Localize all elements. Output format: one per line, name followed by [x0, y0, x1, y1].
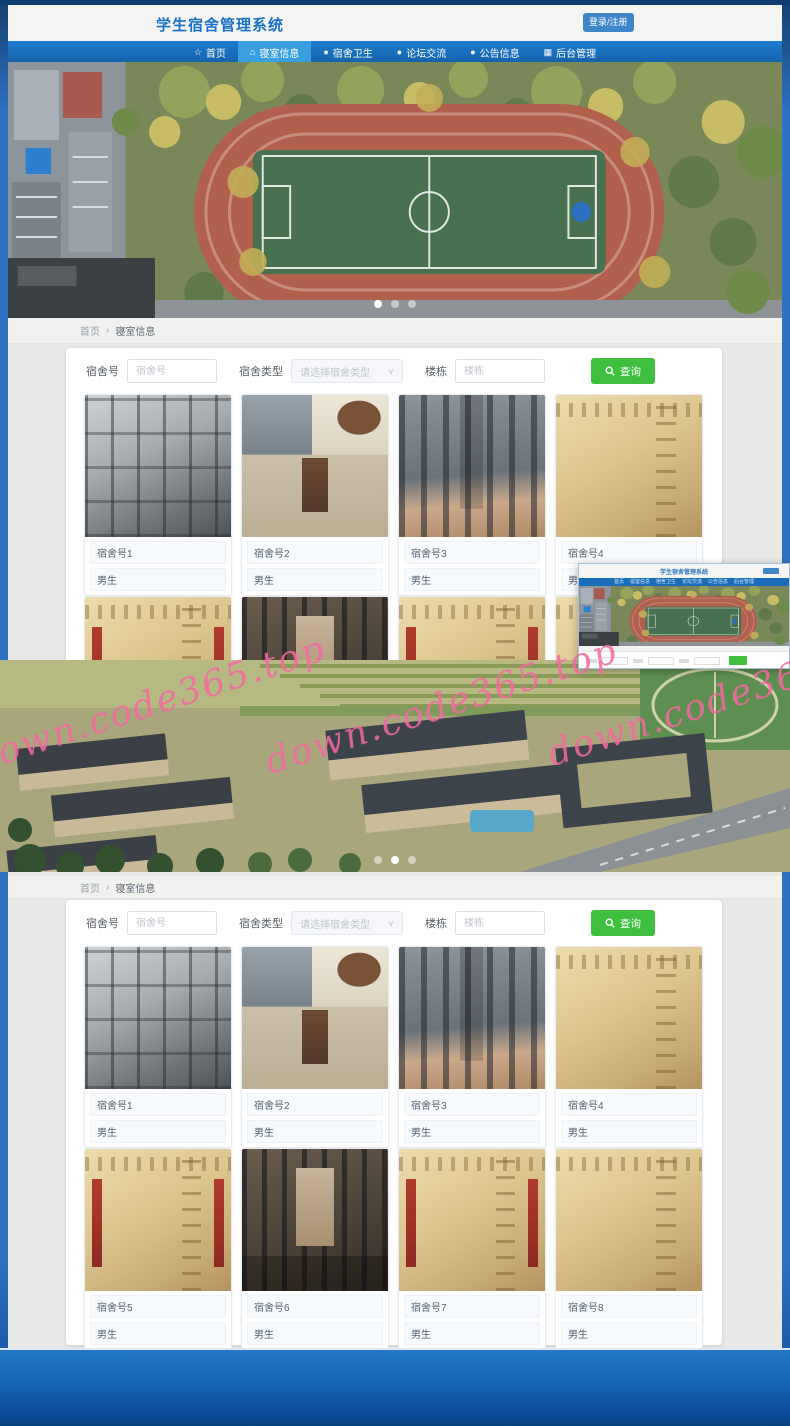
breadcrumb-separator-icon: › — [106, 325, 109, 336]
thumbnail-search-row — [579, 652, 789, 669]
thumbnail-query-button — [729, 656, 747, 665]
thumbnail-login-button — [763, 568, 779, 574]
dorm-no: 宿舍号8 — [561, 1295, 697, 1318]
thumbnail-select — [648, 657, 674, 665]
dorm-photo — [399, 395, 545, 537]
page-title: 学生宿舍管理系统 — [156, 14, 284, 35]
circle-icon: ● — [323, 48, 328, 57]
dorm-type-select[interactable]: 请选择宿舍类型 ∨ — [291, 359, 403, 383]
dorm-grid-row: 宿舍号1男生 宿舍号2男生 宿舍号3男生 宿舍号4男生 — [84, 946, 703, 1148]
dorm-no-label: 宿舍号 — [86, 363, 119, 379]
dorm-card[interactable]: 宿舍号8男生 — [555, 1148, 703, 1350]
dorm-gender: 男生 — [90, 1322, 226, 1345]
dorm-photo — [399, 1149, 545, 1291]
thumbnail-nav-label: 论坛交流 — [682, 578, 702, 586]
dorm-photo — [556, 947, 702, 1089]
dorm-card[interactable]: 宿舍号2男生 — [241, 394, 389, 596]
dorm-gender: 男生 — [247, 1120, 383, 1143]
header: 学生宿舍管理系统 登录/注册 — [8, 5, 782, 41]
dorm-no: 宿舍号2 — [247, 541, 383, 564]
dorm-card[interactable]: 宿舍号4男生 — [555, 946, 703, 1148]
carousel-dot-2[interactable] — [391, 856, 399, 864]
dorm-no: 宿舍号4 — [561, 1093, 697, 1116]
dorm-no: 宿舍号1 — [90, 541, 226, 564]
nav-item-dorm-info[interactable]: ⌂ 寝室信息 — [238, 41, 311, 63]
nav-item-label: 宿舍卫生 — [333, 45, 373, 60]
dorm-no-input[interactable] — [127, 359, 217, 383]
building-input[interactable] — [455, 911, 545, 935]
breadcrumb-home[interactable]: 首页 — [80, 880, 100, 895]
dorm-photo — [242, 1149, 388, 1291]
campus-aerial-photo — [0, 660, 790, 872]
dorm-photo — [556, 395, 702, 537]
dorm-photo — [85, 1149, 231, 1291]
top-border — [0, 0, 790, 5]
dorm-card[interactable]: 宿舍号7男生 — [398, 1148, 546, 1350]
dorm-card[interactable]: 宿舍号5男生 — [84, 1148, 232, 1350]
search-form: 宿舍号 宿舍类型 请选择宿舍类型 ∨ 楼栋 查询 — [66, 348, 722, 384]
thumbnail-nav-label: 公告信息 — [708, 578, 728, 586]
thumbnail-nav-label: 寝室信息 — [630, 578, 650, 586]
nav-item-hygiene[interactable]: ● 宿舍卫生 — [311, 41, 384, 63]
dorm-no: 宿舍号2 — [247, 1093, 383, 1116]
nav-item-forum[interactable]: ● 论坛交流 — [385, 41, 458, 63]
dorm-gender: 男生 — [247, 1322, 383, 1345]
dorm-no: 宿舍号6 — [247, 1295, 383, 1318]
chevron-down-icon: ∨ — [388, 919, 394, 928]
hero-carousel-campus — [0, 660, 790, 872]
carousel-dot-1[interactable] — [374, 856, 382, 864]
nav-item-label: 论坛交流 — [406, 45, 446, 60]
dorm-no-input[interactable] — [127, 911, 217, 935]
carousel-dot-3[interactable] — [408, 856, 416, 864]
dorm-no: 宿舍号7 — [404, 1295, 540, 1318]
dorm-photo — [399, 947, 545, 1089]
stadium-aerial-photo — [8, 62, 782, 318]
nav-item-notice[interactable]: ● 公告信息 — [458, 41, 531, 63]
breadcrumb-separator-icon: › — [106, 882, 109, 893]
thumbnail-label — [679, 659, 689, 663]
query-button-label: 查询 — [620, 916, 641, 931]
circle-icon: ● — [470, 48, 475, 57]
carousel-dot-1[interactable] — [374, 300, 382, 308]
dorm-card[interactable]: 宿舍号3男生 — [398, 394, 546, 596]
dorm-card[interactable]: 宿舍号3男生 — [398, 946, 546, 1148]
dorm-no-label: 宿舍号 — [86, 915, 119, 931]
star-icon: ☆ — [194, 48, 202, 57]
thumbnail-nav-label: 宿舍卫生 — [656, 578, 676, 586]
dorm-photo — [556, 1149, 702, 1291]
dorm-card[interactable]: 宿舍号1男生 — [84, 946, 232, 1148]
dorm-gender: 男生 — [247, 568, 383, 591]
dorm-card[interactable]: 宿舍号1男生 — [84, 394, 232, 596]
thumbnail-hero — [579, 586, 789, 646]
grid-icon: ▦ — [544, 48, 553, 57]
building-input[interactable] — [455, 359, 545, 383]
dorm-no: 宿舍号1 — [90, 1093, 226, 1116]
thumbnail-input — [602, 657, 628, 665]
dorm-photo — [85, 947, 231, 1089]
dorm-card[interactable]: 宿舍号6男生 — [241, 1148, 389, 1350]
building-label: 楼栋 — [425, 915, 447, 931]
dorm-card[interactable]: 宿舍号2男生 — [241, 946, 389, 1148]
page-thumbnail-overlay: 学生宿舍管理系统 首页 寝室信息 宿舍卫生 论坛交流 公告信息 后台管理 — [578, 563, 790, 669]
dorm-type-placeholder: 请选择宿舍类型 — [300, 916, 388, 931]
building-label: 楼栋 — [425, 363, 447, 379]
dorm-type-label: 宿舍类型 — [239, 363, 283, 379]
nav-item-label: 首页 — [206, 45, 226, 60]
breadcrumb: 首页 › 寝室信息 — [8, 318, 782, 344]
dorm-grid-row: 宿舍号5男生 宿舍号6男生 宿舍号7男生 宿舍号8男生 — [84, 1148, 703, 1350]
thumbnail-nav: 首页 寝室信息 宿舍卫生 论坛交流 公告信息 后台管理 — [579, 578, 789, 586]
carousel-dots — [0, 856, 790, 864]
chevron-down-icon: ∨ — [388, 367, 394, 376]
nav-item-admin[interactable]: ▦ 后台管理 — [532, 41, 609, 63]
search-icon — [605, 918, 615, 928]
thumbnail-nav-label: 后台管理 — [734, 578, 754, 586]
query-button[interactable]: 查询 — [591, 358, 655, 384]
thumbnail-header: 学生宿舍管理系统 — [579, 564, 789, 578]
home-icon: ⌂ — [250, 48, 255, 57]
dorm-gender: 男生 — [404, 568, 540, 591]
dorm-photo — [242, 947, 388, 1089]
nav-item-label: 寝室信息 — [259, 45, 299, 60]
dorm-type-label: 宿舍类型 — [239, 915, 283, 931]
dorm-gender: 男生 — [561, 1322, 697, 1345]
query-button[interactable]: 查询 — [591, 910, 655, 936]
page: 学生宿舍管理系统 登录/注册 ☆ 首页 ⌂ 寝室信息 ● 宿舍卫生 ● 论坛交流… — [0, 0, 790, 1426]
nav-item-home[interactable]: ☆ 首页 — [182, 41, 238, 63]
dorm-no: 宿舍号4 — [561, 541, 697, 564]
search-form: 宿舍号 宿舍类型 请选择宿舍类型 ∨ 楼栋 查询 — [66, 900, 722, 936]
dorm-type-select[interactable]: 请选择宿舍类型 ∨ — [291, 911, 403, 935]
dorm-type-placeholder: 请选择宿舍类型 — [300, 364, 388, 379]
search-icon — [605, 366, 615, 376]
nav-item-label: 公告信息 — [480, 45, 520, 60]
thumbnail-title: 学生宿舍管理系统 — [579, 567, 789, 576]
thumbnail-label — [633, 659, 643, 663]
hero-carousel-stadium — [8, 62, 782, 318]
query-button-label: 查询 — [620, 364, 641, 379]
dorm-gender: 男生 — [90, 1120, 226, 1143]
nav-item-label: 后台管理 — [556, 45, 596, 60]
breadcrumb-current: 寝室信息 — [115, 880, 155, 895]
circle-icon: ● — [397, 48, 402, 57]
breadcrumb-current: 寝室信息 — [115, 323, 155, 338]
main-nav: ☆ 首页 ⌂ 寝室信息 ● 宿舍卫生 ● 论坛交流 ● 公告信息 ▦ 后台管理 — [8, 41, 782, 63]
dorm-no: 宿舍号5 — [90, 1295, 226, 1318]
carousel-dot-2[interactable] — [391, 300, 399, 308]
breadcrumb-home[interactable]: 首页 — [80, 323, 100, 338]
carousel-dots — [8, 300, 782, 308]
dorm-gender: 男生 — [404, 1322, 540, 1345]
breadcrumb: 首页 › 寝室信息 — [8, 876, 782, 899]
thumbnail-input — [694, 657, 720, 665]
carousel-dot-3[interactable] — [408, 300, 416, 308]
dorm-photo — [242, 395, 388, 537]
thumbnail-label — [587, 659, 597, 663]
dorm-gender: 男生 — [561, 1120, 697, 1143]
footer — [0, 1348, 790, 1426]
dorm-list-panel: 宿舍号 宿舍类型 请选择宿舍类型 ∨ 楼栋 查询 宿舍号1男生 宿舍号2男生 宿… — [66, 900, 722, 1345]
dorm-no: 宿舍号3 — [404, 541, 540, 564]
dorm-gender: 男生 — [404, 1120, 540, 1143]
dorm-no: 宿舍号3 — [404, 1093, 540, 1116]
login-register-button[interactable]: 登录/注册 — [583, 13, 634, 32]
thumbnail-nav-label: 首页 — [614, 578, 624, 586]
dorm-gender: 男生 — [90, 568, 226, 591]
dorm-photo — [85, 395, 231, 537]
